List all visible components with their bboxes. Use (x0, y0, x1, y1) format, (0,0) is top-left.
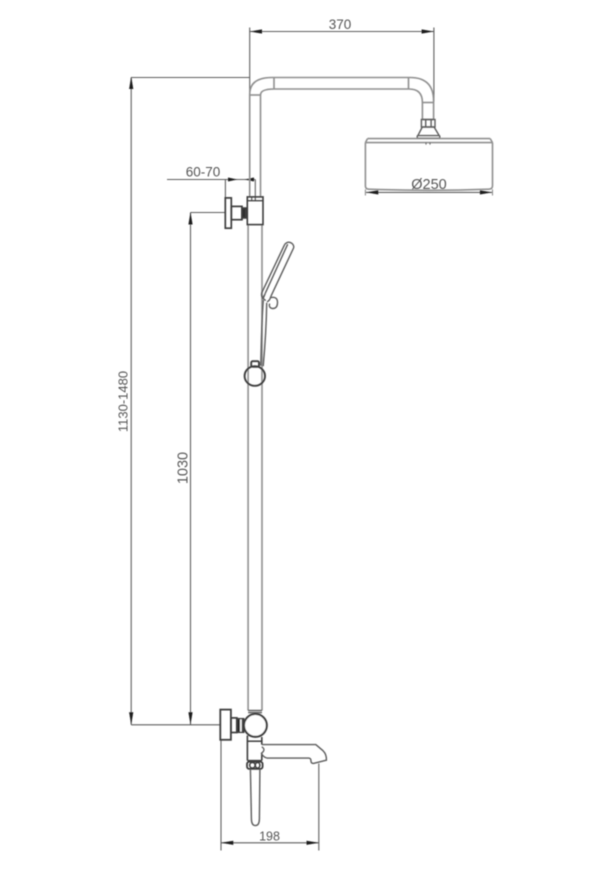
svg-text:1130-1480: 1130-1480 (115, 371, 130, 432)
svg-text:370: 370 (329, 17, 352, 32)
svg-text:1030: 1030 (175, 452, 191, 484)
svg-text:198: 198 (259, 830, 280, 844)
svg-text:60-70: 60-70 (186, 165, 221, 180)
